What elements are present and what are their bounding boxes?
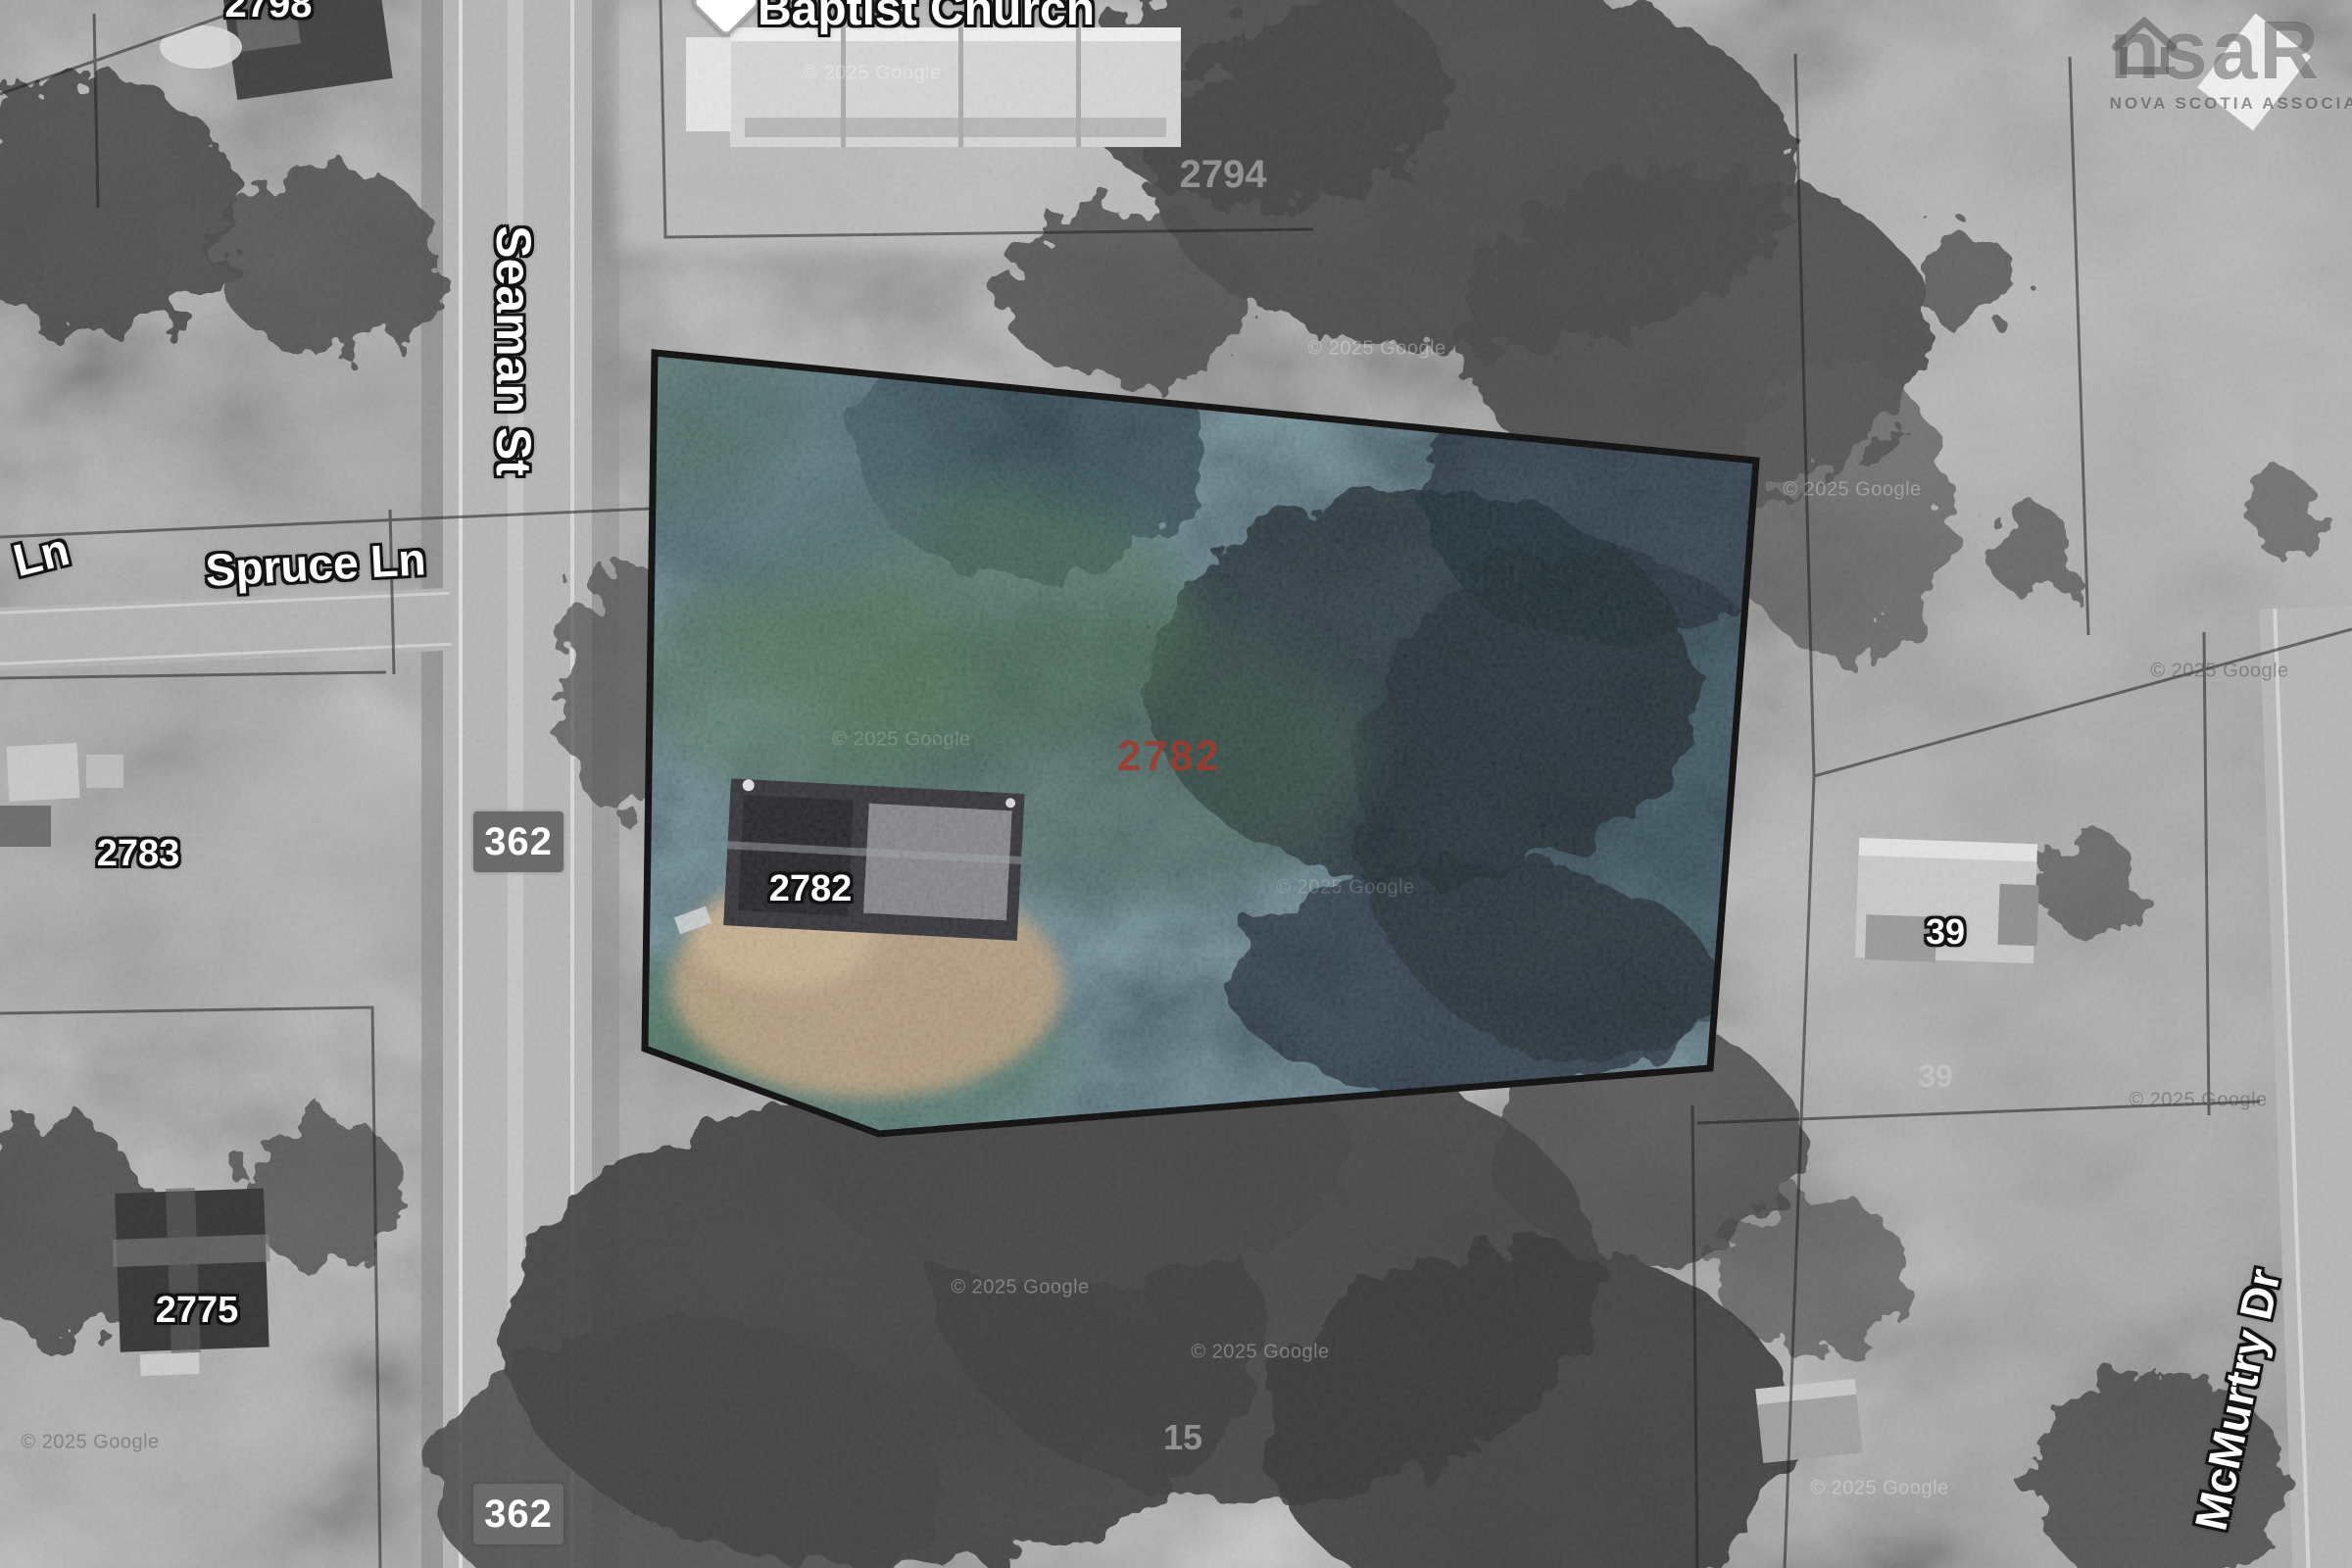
google-watermark: © 2025 Google	[951, 1277, 1089, 1299]
street-label-ln-partial: Ln	[9, 526, 73, 583]
satellite-canvas	[0, 0, 2352, 1568]
lot-number-39: 39	[1918, 1060, 1953, 1092]
house-number-2798: 2798	[225, 0, 313, 24]
satellite-map: Baptist Church 2798 Seaman St Spruce Ln …	[0, 0, 2352, 1568]
google-watermark: © 2025 Google	[832, 729, 970, 752]
google-watermark: © 2025 Google	[1191, 1342, 1329, 1364]
poi-label-baptist-church: Baptist Church	[758, 0, 1095, 33]
google-watermark: © 2025 Google	[1810, 1478, 1948, 1500]
street-label-seaman-st: Seaman St	[489, 225, 538, 476]
house-number-2775: 2775	[156, 1292, 239, 1329]
google-watermark: © 2025 Google	[1307, 338, 1445, 361]
google-watermark: © 2025 Google	[1276, 877, 1414, 900]
house-number-2782: 2782	[769, 870, 853, 907]
google-watermark: © 2025 Google	[1783, 479, 1921, 502]
house-number-39: 39	[1926, 914, 1965, 950]
google-watermark: © 2025 Google	[2129, 1090, 2267, 1112]
parcel-number-2782: 2782	[1117, 735, 1221, 778]
street-label-spruce-ln: Spruce Ln	[204, 536, 426, 593]
lot-number-15: 15	[1163, 1420, 1202, 1455]
house-number-2783: 2783	[97, 835, 180, 872]
route-shield-362-south: 362	[473, 1484, 563, 1544]
film-grain	[0, 0, 2352, 1568]
google-watermark: © 2025 Google	[21, 1432, 159, 1454]
google-watermark: © 2025 Google	[2150, 661, 2288, 683]
route-shield-362-north: 362	[473, 811, 563, 872]
google-watermark: © 2025 Google	[803, 63, 941, 85]
lot-number-2794: 2794	[1180, 155, 1267, 194]
